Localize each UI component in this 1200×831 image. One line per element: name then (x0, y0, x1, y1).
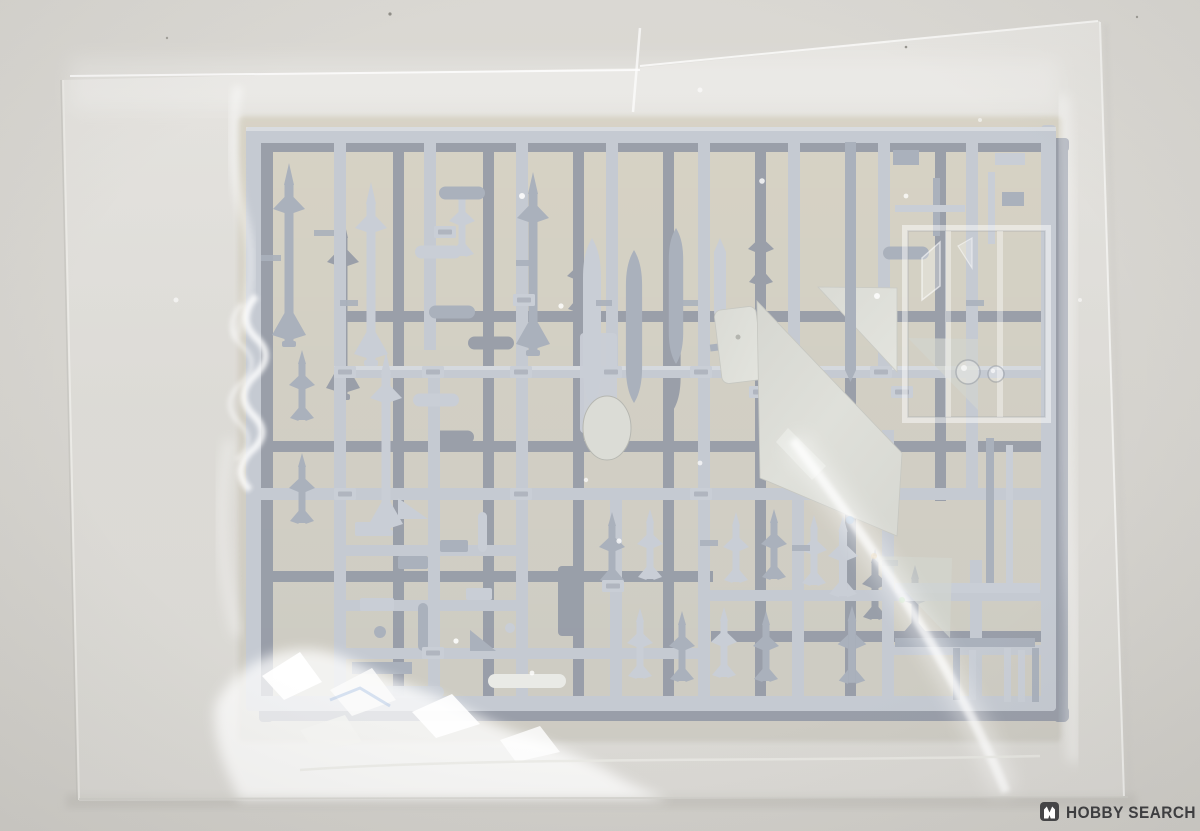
photo-model-kit-sprue-in-bag: HOBBY SEARCH (0, 0, 1200, 831)
watermark-text: HOBBY SEARCH (1066, 804, 1196, 822)
hobby-search-logo-icon (1040, 802, 1059, 821)
vignette (0, 0, 1200, 831)
product-photo: HOBBY SEARCH (0, 0, 1200, 831)
